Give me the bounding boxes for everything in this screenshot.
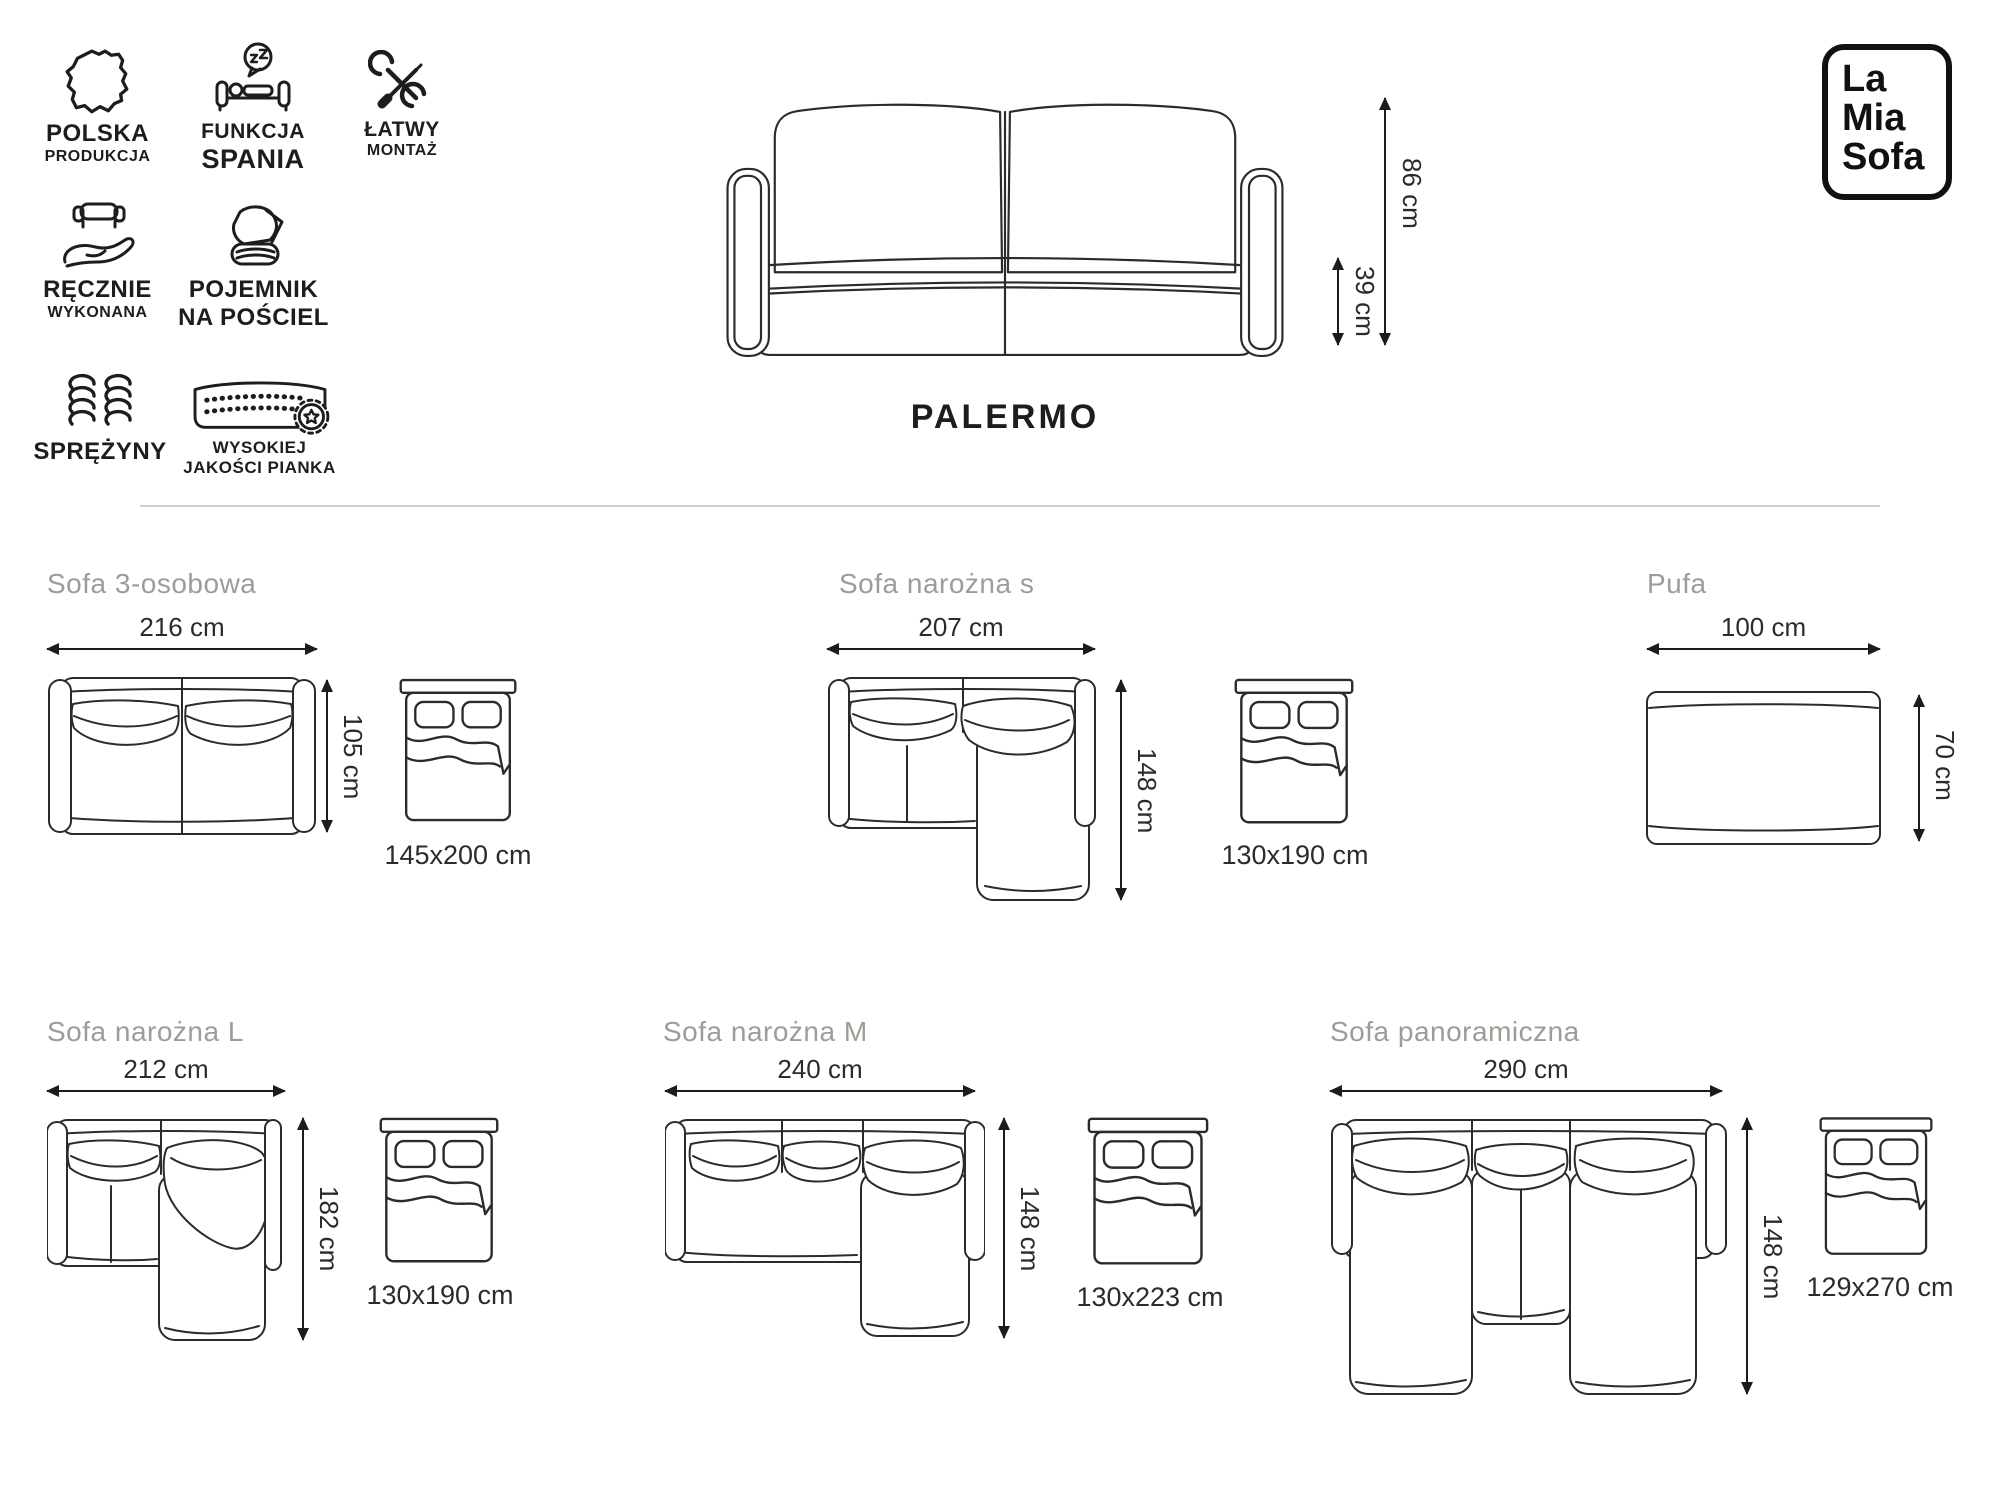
feature-sublabel: PRODUKCJA (30, 148, 165, 166)
variant-depth-arrow (1918, 695, 1920, 841)
bed-size-label: 130x190 cm (1205, 840, 1385, 871)
variant-sofa-3-osobowa: Sofa 3-osobowa 216 cm 105 cm 145x200 cm (40, 568, 600, 898)
variant-width-label: 212 cm (47, 1054, 285, 1085)
variant-depth-arrow (1746, 1118, 1748, 1394)
feature-label: ŁATWY (342, 118, 462, 142)
variant-depth-arrow (1003, 1118, 1005, 1338)
variant-title: Sofa narożna M (663, 1016, 868, 1048)
feature-pojemnik-na-posciel: POJEMNIK NA POŚCIEL (176, 192, 331, 331)
sofa-top-view-drawing (827, 672, 1097, 904)
palermo-dimensions-infographic: POLSKA PRODUKCJA FUNKCJA SPAN (0, 0, 2000, 1500)
feature-sprezyny: SPRĘŻYNY (30, 368, 170, 466)
variant-title: Sofa narożna L (47, 1016, 244, 1048)
variant-width-label: 207 cm (827, 612, 1095, 643)
feature-sublabel: NA POŚCIEL (176, 304, 331, 332)
bedding-storage-icon (214, 198, 294, 276)
sleeping-function-icon (210, 40, 296, 120)
tools-icon (368, 50, 436, 118)
seat-height-arrow (1337, 258, 1339, 345)
section-divider (140, 505, 1880, 507)
variant-width-label: 216 cm (47, 612, 317, 643)
bed-top-view-icon (1818, 1114, 1934, 1260)
bed-size-label: 130x223 cm (1055, 1282, 1245, 1313)
brand-line-1: La (1842, 60, 1946, 99)
variant-depth-arrow (326, 680, 328, 832)
handmade-icon (57, 198, 139, 276)
feature-sublabel: WYKONANA (30, 304, 165, 322)
bed-top-view-icon (1233, 677, 1355, 827)
feature-polska-produkcja: POLSKA PRODUKCJA (30, 38, 165, 166)
feature-label: FUNKCJA (178, 120, 328, 144)
brand-line-2: Mia (1842, 99, 1946, 138)
sofa-top-view-drawing (1330, 1114, 1728, 1396)
sofa-top-view-drawing (665, 1114, 985, 1339)
foam-quality-icon (185, 374, 335, 438)
variant-title: Pufa (1647, 568, 1707, 600)
variant-width-label: 240 cm (665, 1054, 975, 1085)
feature-recznie-wykonana: RĘCZNIE WYKONANA (30, 192, 165, 322)
variant-depth-label: 148 cm (1757, 1214, 1788, 1299)
bed-size-label: 129x270 cm (1790, 1272, 1970, 1303)
feature-label: POLSKA (30, 120, 165, 148)
bed-top-view-icon (1083, 1116, 1213, 1268)
variant-depth-arrow (302, 1118, 304, 1340)
bed-size-label: 130x190 cm (350, 1280, 530, 1311)
variant-sofa-narozna-l: Sofa narożna L 212 cm 182 cm 130 (40, 1014, 600, 1454)
feature-funkcja-spania: FUNKCJA SPANIA (178, 36, 328, 175)
total-height-label: 86 cm (1396, 158, 1427, 229)
variant-depth-label: 105 cm (337, 714, 368, 799)
variant-pufa: Pufa 100 cm 70 cm (1645, 568, 1975, 898)
feature-label: SPRĘŻYNY (30, 438, 170, 466)
feature-label: POJEMNIK (176, 276, 331, 304)
variant-title: Sofa 3-osobowa (47, 568, 256, 600)
sofa-front-view-drawing (700, 85, 1310, 370)
feature-label: WYSOKIEJ (172, 438, 347, 458)
variant-depth-label: 70 cm (1929, 730, 1960, 801)
feature-wysokiej-jakosci-pianka: WYSOKIEJ JAKOŚCI PIANKA (172, 372, 347, 477)
feature-sublabel: JAKOŚCI PIANKA (172, 458, 347, 478)
springs-icon (56, 372, 144, 438)
total-height-arrow (1384, 98, 1386, 345)
feature-label: RĘCZNIE (30, 276, 165, 304)
feature-latwy-montaz: ŁATWY MONTAŻ (342, 40, 462, 161)
variant-width-label: 100 cm (1647, 612, 1880, 643)
variant-sofa-narozna-m: Sofa narożna M 240 cm 1 (655, 1014, 1255, 1454)
feature-sublabel: SPANIA (178, 144, 328, 175)
variant-width-label: 290 cm (1330, 1054, 1722, 1085)
bed-top-view-icon (398, 677, 518, 825)
poland-map-icon (61, 46, 135, 120)
seat-height-label: 39 cm (1349, 266, 1380, 337)
variant-sofa-panoramiczna: Sofa panoramiczna 290 cm (1322, 1014, 1992, 1464)
variant-width-arrow (1330, 1090, 1722, 1092)
variant-depth-label: 182 cm (313, 1186, 344, 1271)
bed-size-label: 145x200 cm (370, 840, 546, 871)
variant-width-arrow (665, 1090, 975, 1092)
pufa-top-view-drawing (1645, 690, 1882, 846)
variant-width-arrow (47, 648, 317, 650)
variant-depth-label: 148 cm (1014, 1186, 1045, 1271)
bed-top-view-icon (378, 1116, 500, 1266)
product-title: PALERMO (700, 398, 1310, 437)
sofa-top-view-drawing (47, 1114, 291, 1342)
variant-width-arrow (47, 1090, 285, 1092)
variant-depth-label: 148 cm (1131, 748, 1162, 833)
variant-title: Sofa narożna s (839, 568, 1034, 600)
sofa-top-view-drawing (47, 672, 317, 840)
brand-line-3: Sofa (1842, 138, 1946, 177)
variant-sofa-narozna-s: Sofa narożna s 207 cm 148 cm 130 (825, 568, 1395, 928)
variant-width-arrow (827, 648, 1095, 650)
brand-logo: La Mia Sofa (1822, 44, 1952, 200)
variant-depth-arrow (1120, 680, 1122, 900)
variant-width-arrow (1647, 648, 1880, 650)
variant-title: Sofa panoramiczna (1330, 1016, 1580, 1048)
feature-sublabel: MONTAŻ (342, 142, 462, 160)
